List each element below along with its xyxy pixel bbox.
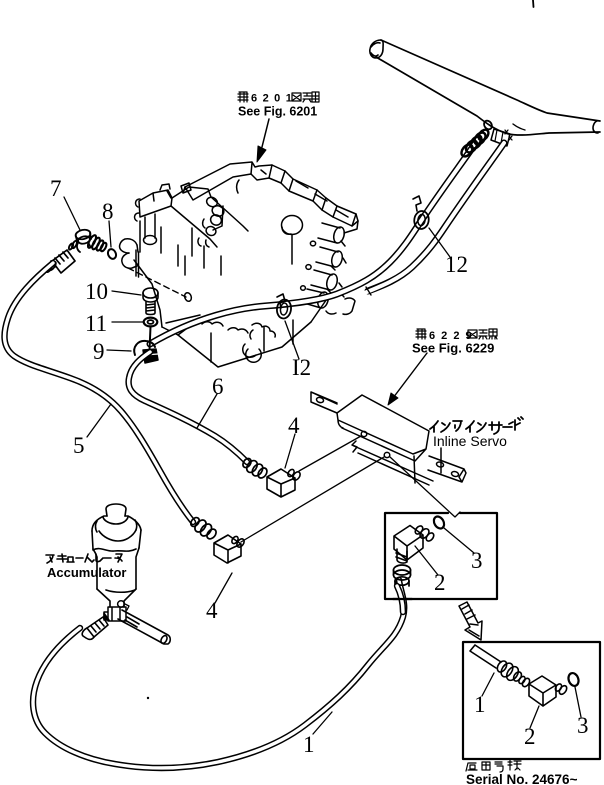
svg-text:5: 5 — [73, 433, 85, 458]
svg-text:Serial No. 24676~: Serial No. 24676~ — [466, 772, 578, 785]
svg-text:4: 4 — [206, 598, 218, 623]
svg-text:8: 8 — [102, 199, 114, 224]
svg-text:11: 11 — [85, 311, 107, 336]
svg-text:6 2 0 1: 6 2 0 1 — [251, 93, 293, 105]
svg-text:2: 2 — [524, 724, 536, 749]
svg-text:4: 4 — [288, 413, 300, 438]
svg-text:3: 3 — [471, 548, 483, 573]
svg-text:Accumulator: Accumulator — [47, 565, 126, 580]
svg-text:1: 1 — [474, 692, 486, 717]
svg-text:3: 3 — [577, 713, 589, 738]
svg-text:Inline Servo: Inline Servo — [433, 433, 507, 449]
svg-text:6: 6 — [212, 374, 224, 399]
svg-text:2: 2 — [434, 570, 446, 595]
svg-text:See Fig. 6201: See Fig. 6201 — [238, 105, 317, 119]
svg-text:1: 1 — [303, 732, 315, 757]
svg-text:I2: I2 — [292, 355, 311, 380]
svg-text:12: 12 — [445, 252, 468, 277]
svg-text:See Fig. 6229: See Fig. 6229 — [412, 341, 494, 356]
svg-text:9: 9 — [93, 339, 105, 364]
svg-text:7: 7 — [50, 176, 62, 201]
svg-text:10: 10 — [85, 279, 108, 304]
